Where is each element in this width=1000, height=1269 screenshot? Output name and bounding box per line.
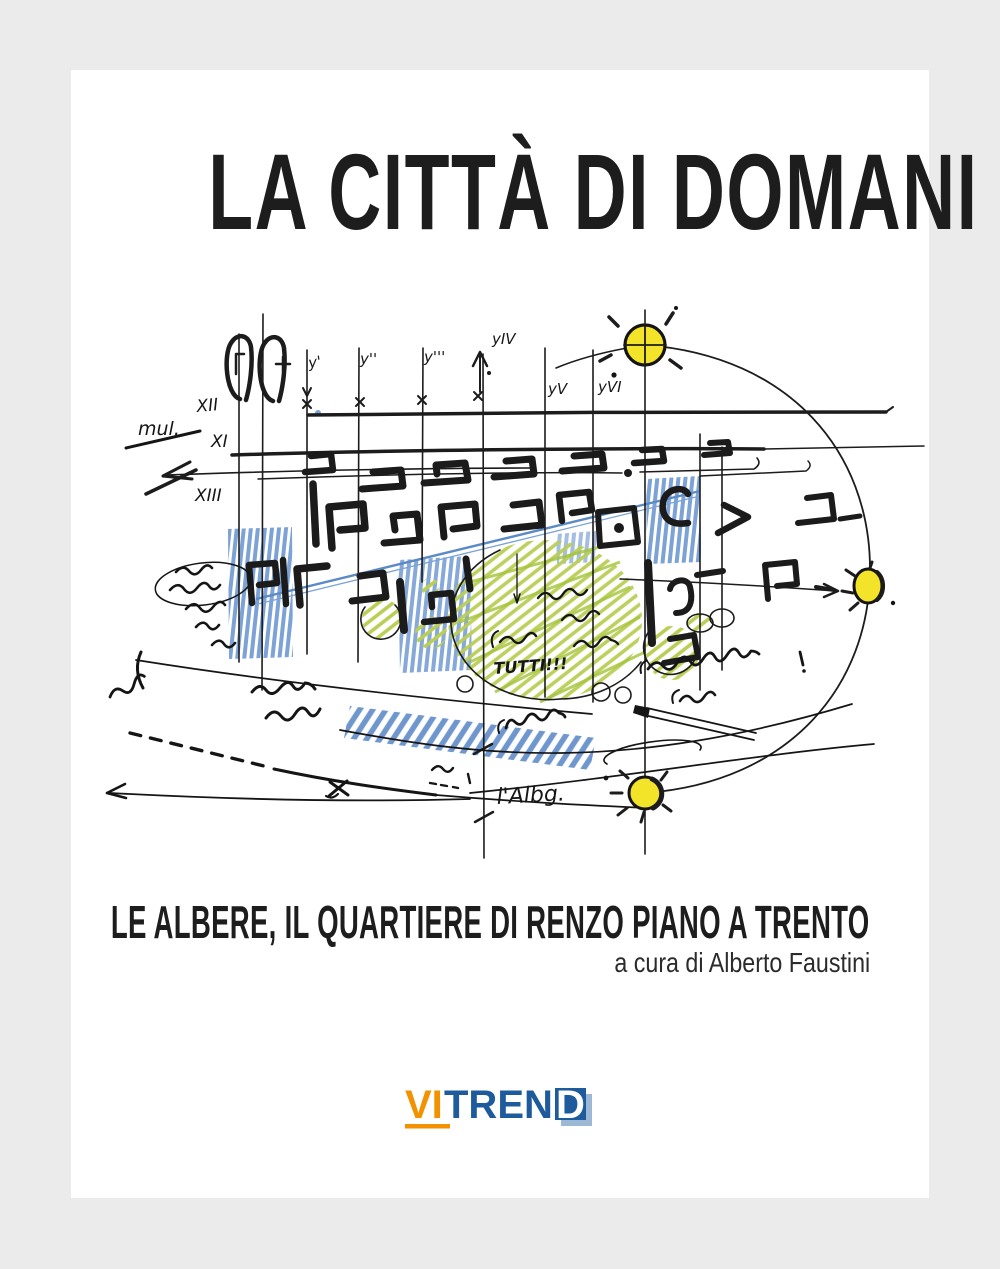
logo-text-tren: TREN [444,1083,553,1127]
grid-label-y3: y''' [423,348,445,366]
note-mul: mul. [138,418,180,440]
sun-icon-right [842,562,895,610]
note-albg: l'Albg. [496,781,565,810]
grid-label-y4: yIV [491,330,517,348]
book-cover: LA CITTÀ DI DOMANI [71,70,929,1198]
cover-sketch-illustration: XII XI XIII mul. y' y'' y''' yIV yV yVI … [99,305,929,895]
grid-label-y1: y' [306,352,322,372]
book-title: LA CITTÀ DI DOMANI [208,138,791,246]
book-subtitle: LE ALBERE, IL QUARTIERE DI RENZO PIANO A… [111,899,870,945]
logo-text-vi: VI [405,1083,443,1127]
grid-label-x12: XII [195,395,219,417]
logo-text-d: D [556,1083,585,1127]
grid-label-y6: yVI [597,378,622,396]
page-background: { "page": { "background": "#ebebeb", "co… [0,0,1000,1269]
grid-label-y5: yV [547,380,569,398]
sun-icon-bottom [604,771,671,822]
sun-icon-top [600,306,681,378]
grid-label-x13: XIII [194,486,222,506]
grid-label-y2: y'' [359,350,377,368]
book-byline: a cura di Alberto Faustini [614,949,870,977]
publisher-logo: VI TREN D [405,1082,605,1134]
grid-label-x1: XI [210,432,228,452]
